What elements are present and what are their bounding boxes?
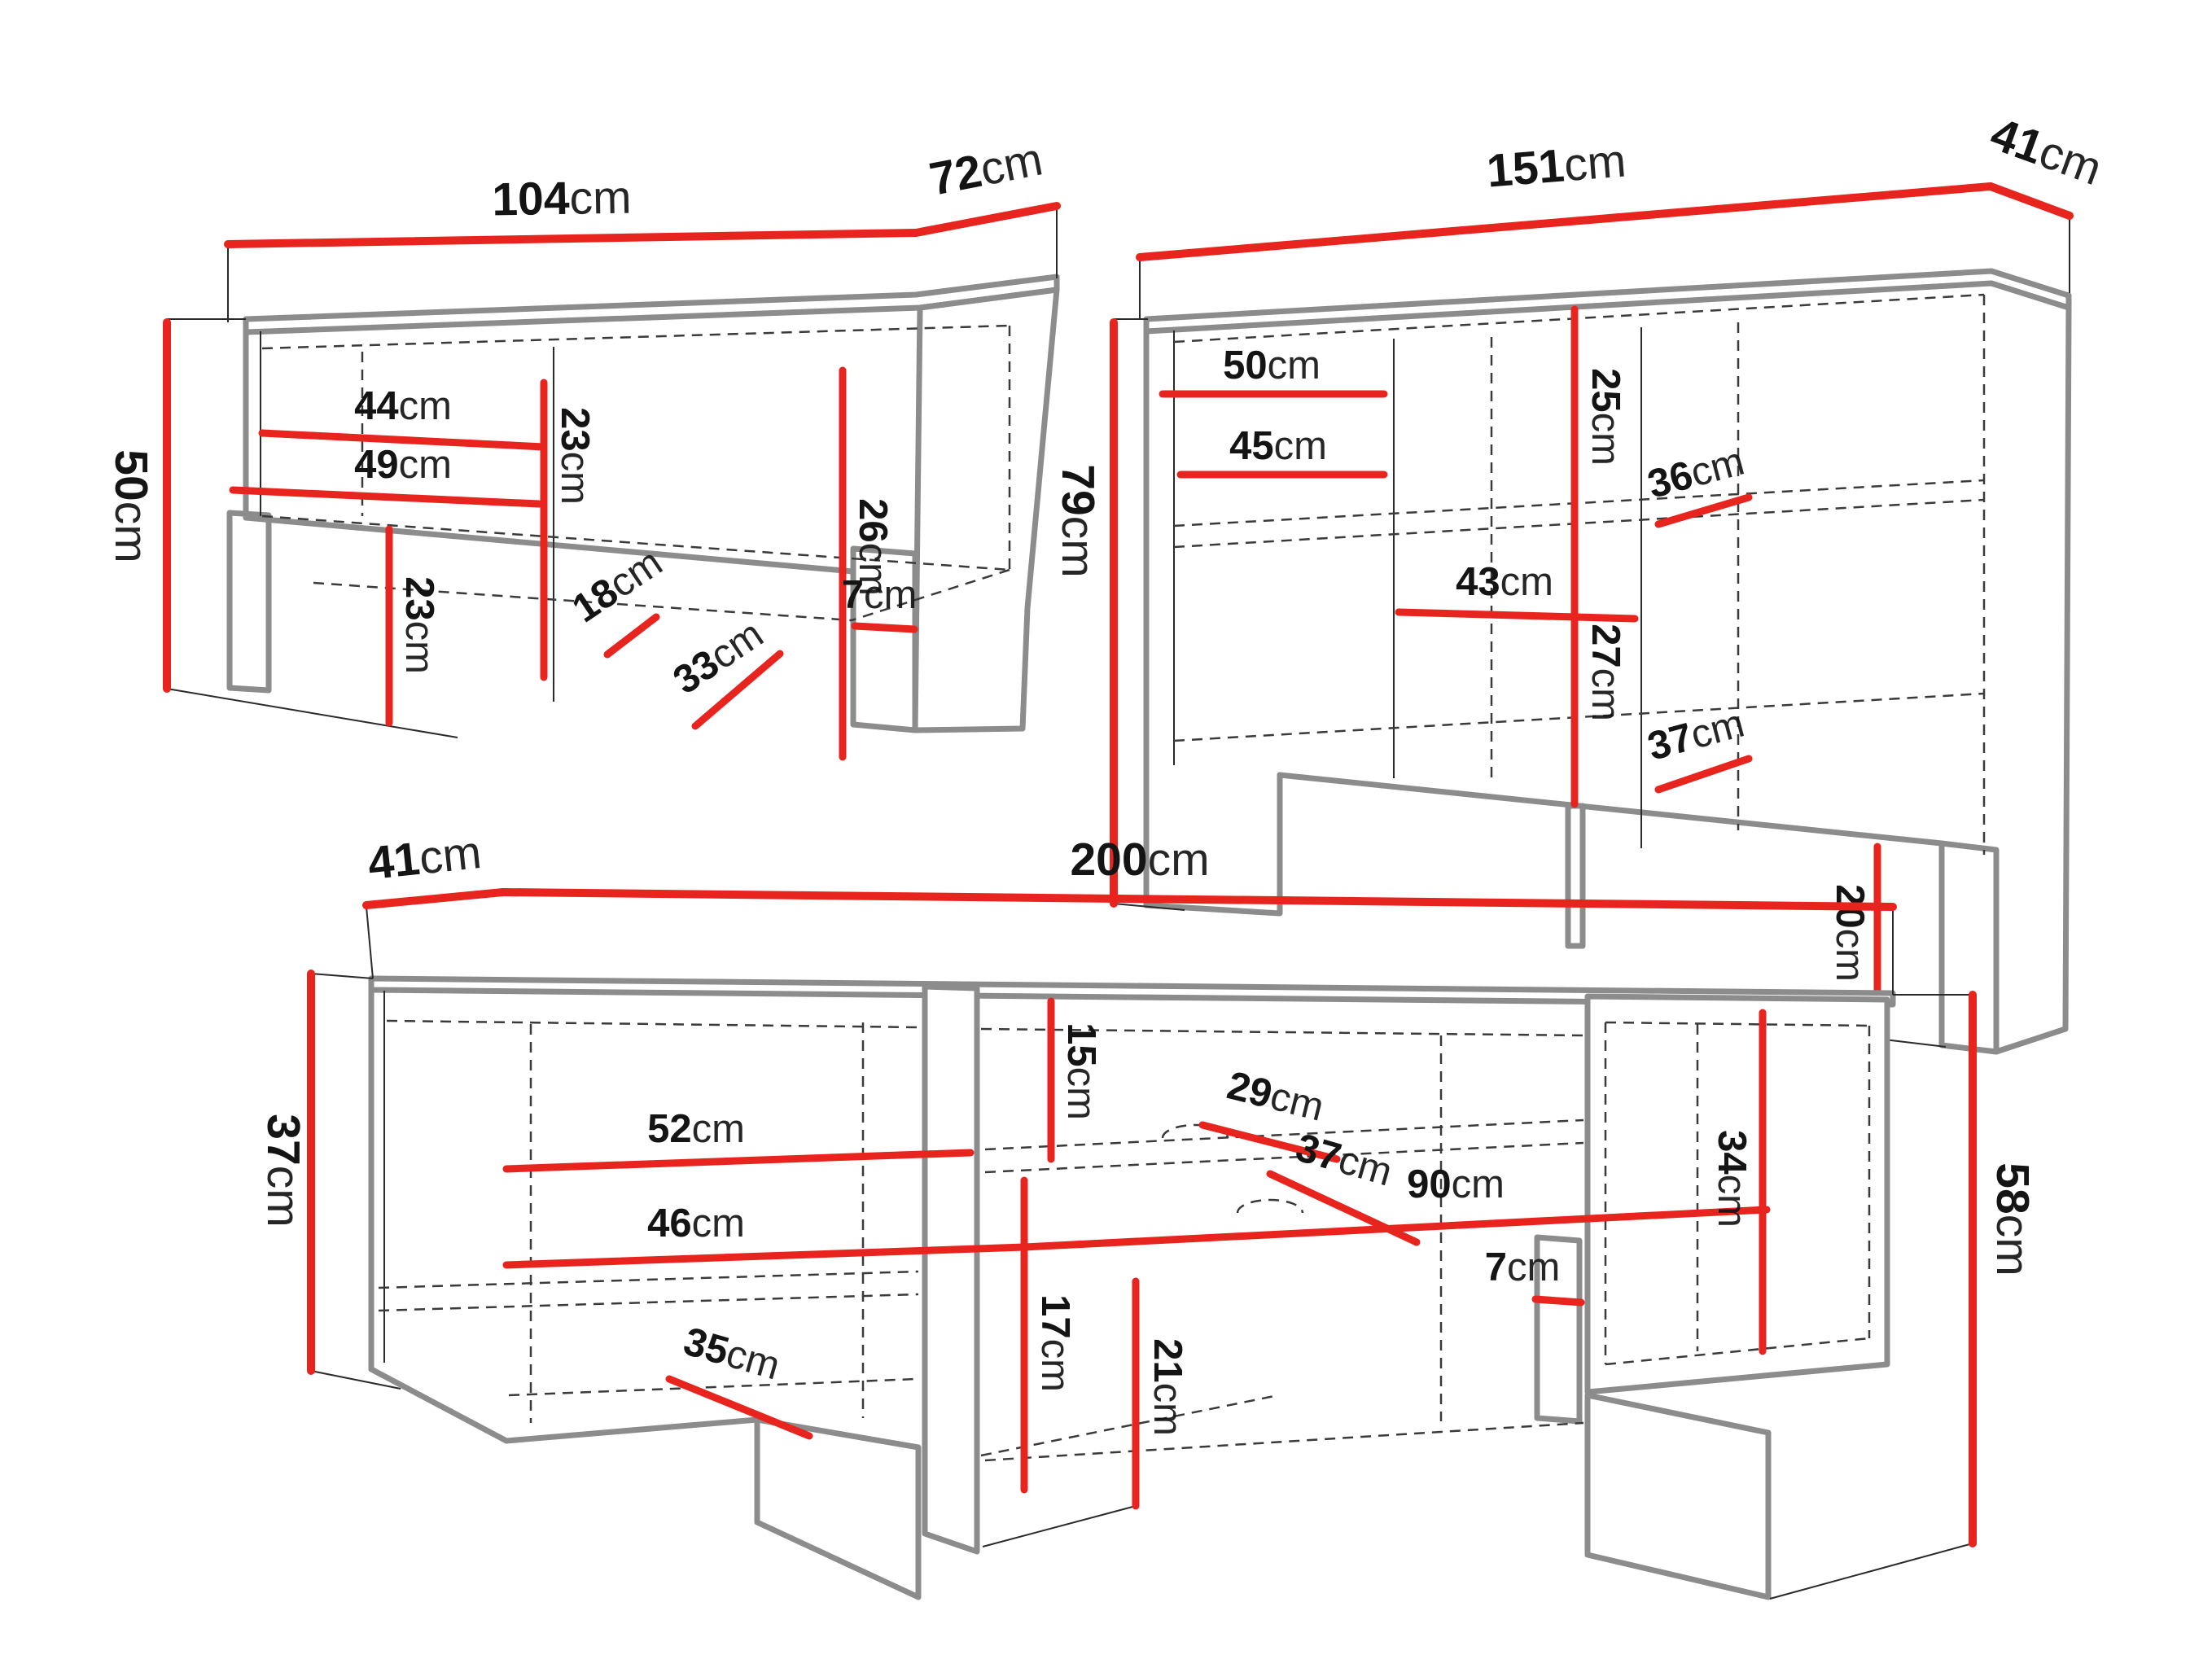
dimension-label: 41cm: [1984, 107, 2109, 195]
furniture-dimension-diagram: 104cm 72cm 50cm 44cm 49cm 23cm 26cm 18c: [0, 0, 2212, 1659]
dimension-line: [1140, 186, 1991, 257]
dimension-label: 17cm: [1033, 1294, 1077, 1392]
dimension-label: 21cm: [1145, 1338, 1189, 1436]
center-divider-panel: [925, 987, 977, 1552]
dimension-label: 37cm: [257, 1114, 309, 1227]
dimension-label: 50cm: [1223, 344, 1321, 387]
dimension-line: [916, 206, 1057, 233]
dim-shelf-52: 52cm: [506, 1107, 970, 1169]
dimension-label: 25cm: [1583, 368, 1627, 466]
center-support-leg: [1568, 806, 1583, 946]
dimension-label: 151cm: [1485, 134, 1628, 197]
dim-lower-27: 27cm: [1575, 539, 1627, 804]
dimension-label: 29cm: [1223, 1063, 1328, 1129]
dimension-line: [1399, 612, 1635, 619]
dim-width-151: 151cm: [1140, 134, 1991, 257]
piece-corner-tv-bench: 104cm 72cm 50cm 44cm 49cm 23cm 26cm 18c: [105, 133, 1057, 757]
top-slab: [1146, 271, 2069, 331]
dim-shelf-43: 43cm: [1399, 560, 1635, 619]
piece-tv-stand: 41cm 200cm 37cm 15cm 52cm 29cm 46cm 90c: [257, 826, 2039, 1599]
right-panel-edge: [1996, 308, 2069, 1052]
dim-height-37: 37cm: [257, 974, 311, 1371]
left-bottom-slant: [371, 1369, 757, 1441]
dimension-label: 7cm: [1485, 1245, 1561, 1289]
extension-line: [167, 689, 458, 738]
bottom-edge: [1280, 775, 1942, 843]
dimension-label: 72cm: [926, 133, 1047, 205]
dimension-label: 44cm: [354, 384, 452, 428]
dimension-label: 27cm: [1583, 624, 1627, 721]
dim-width-104: 104cm: [228, 172, 916, 244]
dim-depth-72: 72cm: [916, 133, 1057, 233]
diagram-canvas: 104cm 72cm 50cm 44cm 49cm 23cm 26cm 18c: [0, 0, 2212, 1659]
dimension-label: 45cm: [1229, 424, 1327, 468]
dim-leg-21: 21cm: [1136, 1281, 1189, 1506]
dimension-label: 37cm: [1291, 1126, 1397, 1195]
dimension-label: 35cm: [679, 1320, 785, 1389]
dimension-label: 23cm: [397, 576, 441, 674]
right-leg: [1588, 1395, 1768, 1597]
dim-depth-33: 33cm: [666, 612, 780, 726]
dimension-label: 20cm: [1828, 884, 1872, 982]
dimension-label: 37cm: [1643, 701, 1749, 768]
extension-line: [1770, 1543, 1973, 1599]
bottom-edge: [246, 518, 853, 571]
dimension-label: 34cm: [1710, 1130, 1754, 1228]
dim-depth-41: 41cm: [1984, 107, 2109, 216]
middle-shelf-front: [1174, 500, 1984, 547]
dimension-label: 33cm: [666, 612, 772, 703]
piece-sideboard: 151cm 41cm 79cm 50cm 45cm 25cm 36cm 43c: [1052, 107, 2109, 1052]
tv-stand-body: [311, 907, 1973, 1599]
cable-hole: [1237, 1200, 1303, 1213]
dim-shelf-49: 49cm: [233, 443, 539, 504]
dim-width-200: 200cm: [503, 834, 1893, 907]
bottom-shelf: [1174, 694, 1984, 741]
dimension-line: [855, 626, 914, 629]
dimension-label: 15cm: [1059, 1022, 1103, 1120]
dimension-line: [1535, 1299, 1581, 1302]
dim-shelf-50: 50cm: [1163, 344, 1384, 394]
dimension-label: 49cm: [354, 443, 452, 487]
dimension-line: [503, 892, 1893, 907]
dimension-label: 43cm: [1456, 560, 1553, 604]
dim-depth-18: 18cm: [565, 541, 671, 654]
dim-niche-15: 15cm: [1051, 1001, 1103, 1159]
left-shelf-back: [379, 1272, 918, 1288]
dim-upper-25: 25cm: [1575, 309, 1627, 539]
dim-leg-23: 23cm: [389, 529, 441, 723]
right-bottom: [985, 1423, 1583, 1460]
dim-shelf-44: 44cm: [262, 384, 544, 447]
dim-depth-37: 37cm: [1643, 701, 1749, 790]
dimension-line: [233, 490, 539, 504]
dim-depth-36: 36cm: [1643, 439, 1749, 524]
dimension-line: [1991, 186, 2070, 216]
dimension-label: 79cm: [1052, 464, 1104, 577]
dimension-label: 41cm: [366, 826, 484, 890]
dimension-line: [607, 617, 656, 654]
dim-depth-37b: 37cm: [1270, 1126, 1417, 1242]
dimension-label: 7cm: [842, 573, 918, 617]
extension-line: [311, 974, 373, 978]
extension-line: [366, 907, 373, 978]
dimension-label: 52cm: [647, 1107, 745, 1151]
dim-height-79: 79cm: [1052, 322, 1114, 904]
dimension-label: 23cm: [553, 407, 597, 505]
dimension-label: 58cm: [1986, 1162, 2039, 1276]
dim-height-50: 50cm: [105, 322, 167, 689]
dimension-label: 104cm: [492, 172, 632, 226]
dim-compartment-23: 23cm: [544, 383, 597, 677]
left-leg: [230, 513, 269, 690]
middle-shelf-back: [1174, 480, 1984, 526]
dim-shelf-45: 45cm: [1180, 424, 1384, 475]
dimension-label: 90cm: [1407, 1162, 1505, 1206]
left-shelf-front: [379, 1294, 918, 1311]
dim-depth-41: 41cm: [366, 826, 503, 905]
dimension-line: [366, 892, 503, 905]
corner-tv-bench-body: [167, 208, 1057, 738]
dimension-label: 46cm: [647, 1202, 745, 1245]
dim-height-58: 58cm: [1973, 995, 2039, 1543]
right-side-panel: [915, 290, 1057, 730]
back-top-edge: [387, 1021, 918, 1027]
dimension-label: 50cm: [105, 449, 157, 562]
dim-niche-17: 17cm: [1024, 1180, 1077, 1490]
dimension-line: [506, 1153, 970, 1169]
extension-line: [983, 1506, 1136, 1547]
dimension-line: [228, 233, 916, 244]
left-center-leg: [757, 1420, 918, 1597]
dimension-label: 200cm: [1070, 834, 1209, 886]
